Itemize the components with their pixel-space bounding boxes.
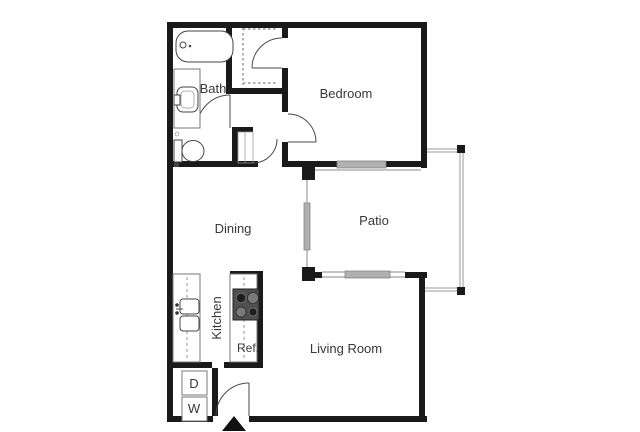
living-room-window: [345, 271, 390, 278]
wall-segment: [282, 22, 288, 38]
closet-door: [252, 38, 282, 68]
room-label-kitchen: Kitchen: [209, 296, 224, 339]
wall-segment: [249, 416, 427, 422]
room-label-patio: Patio: [359, 213, 389, 228]
bathtub-icon: [176, 31, 233, 62]
linen-closet: [238, 132, 253, 163]
vanity-sink-icon: [174, 69, 200, 128]
patio-railing: [425, 145, 465, 295]
wall-segment: [386, 161, 427, 167]
wall-segment: [232, 127, 238, 166]
wall-segment: [282, 142, 288, 167]
room-labels: Bath Bedroom Dining Patio Living Room Ki…: [200, 81, 389, 356]
wall-segment: [302, 272, 322, 278]
floor-plan-svg: D W Bath Bedroom Dining Patio Living Roo…: [0, 0, 640, 432]
entry-door: [216, 383, 249, 416]
railing-post: [457, 287, 465, 295]
bedroom-door: [288, 114, 316, 142]
railing-post: [457, 145, 465, 153]
room-label-bath: Bath: [200, 81, 227, 96]
wall-segment: [421, 22, 427, 168]
wall-segment: [419, 272, 425, 422]
wall-segment: [232, 127, 253, 132]
wall-segment: [226, 88, 282, 94]
floor-plan-image: D W Bath Bedroom Dining Patio Living Roo…: [0, 0, 640, 432]
bath-fixtures: [174, 31, 233, 167]
hallway-door: [253, 139, 277, 163]
room-label-living-room: Living Room: [310, 341, 382, 356]
room-label-dining: Dining: [215, 221, 252, 236]
wall-segment: [224, 362, 263, 368]
wall-segment: [405, 272, 427, 278]
stove-icon: [233, 289, 259, 320]
wall-segment: [167, 362, 212, 368]
linen-closet-doors: [238, 132, 253, 163]
refrigerator-label: Ref.: [237, 341, 259, 355]
wall-segment: [282, 68, 288, 112]
railing-inner-line: [425, 152, 460, 288]
laundry-closet: D W: [182, 371, 207, 421]
railing-outer-line: [425, 149, 463, 291]
bath-door: [197, 95, 230, 128]
sliding-glass-door: [304, 203, 310, 250]
wall-segment: [167, 22, 427, 28]
closet-shelving: [243, 28, 278, 85]
patio-post: [302, 161, 315, 180]
room-label-bedroom: Bedroom: [320, 86, 373, 101]
washer-label: W: [188, 401, 201, 416]
bedroom-window: [337, 161, 386, 168]
dryer-label: D: [189, 376, 198, 391]
entry-marker-triangle: [222, 416, 246, 431]
